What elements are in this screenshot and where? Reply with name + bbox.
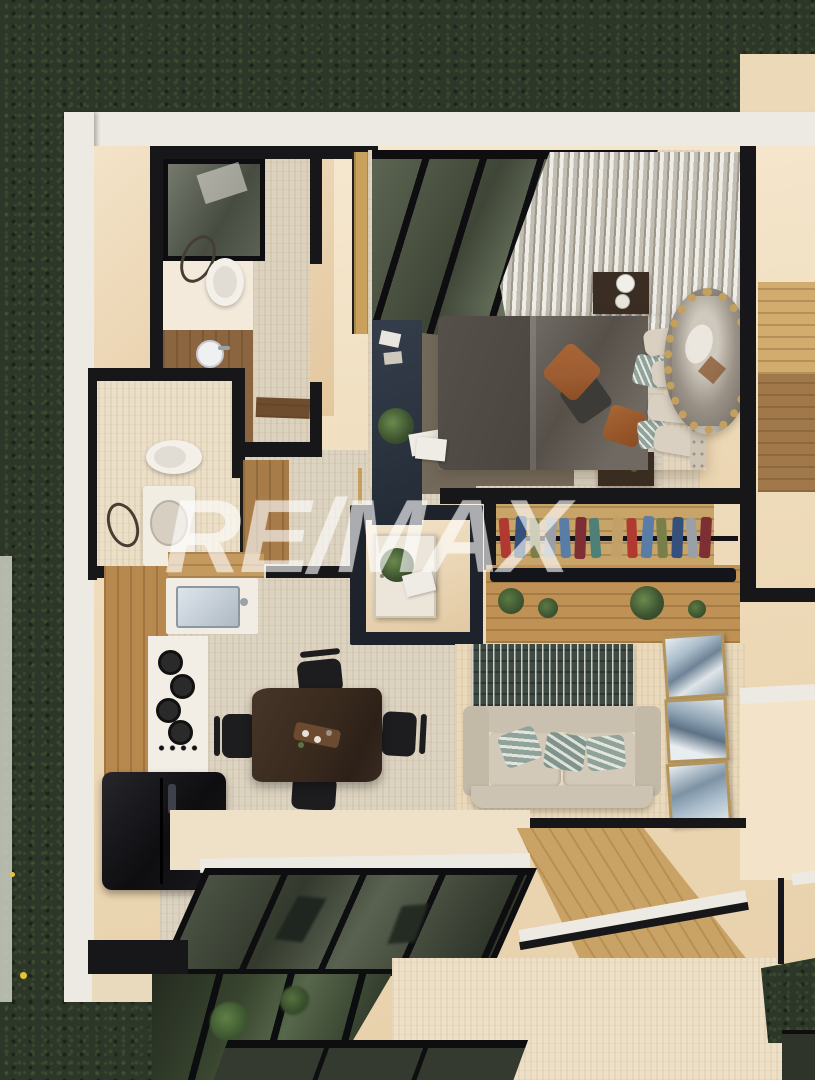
sofa (463, 706, 661, 808)
adjacent-cabinet-upper (758, 282, 815, 374)
floor-plan-render: RE/MAX (0, 0, 815, 1080)
plant-pot (538, 598, 558, 618)
sofa-pillow (543, 731, 588, 772)
artwork-frame (662, 632, 728, 700)
sofa-arm-left (463, 706, 489, 796)
duvet-seam (530, 316, 536, 470)
wall-bathroom-1-top (150, 146, 378, 159)
clothes-item (656, 518, 668, 558)
toilet-1 (206, 258, 244, 306)
duvet-fold (438, 316, 530, 470)
sliding-door-mullions (167, 875, 527, 969)
burner (170, 674, 195, 699)
cup (302, 730, 309, 737)
cooktop-knobs (156, 744, 200, 752)
lower-glass-mullion (310, 1048, 330, 1080)
vanity-sink-1 (196, 340, 224, 368)
wall-bottom-left-pier (88, 940, 188, 974)
table-lamp (616, 274, 635, 293)
sofa-pillow (586, 734, 627, 771)
plant-pot (630, 586, 664, 620)
remax-watermark: RE/MAX (164, 478, 568, 597)
dining-chair (381, 711, 417, 757)
burner (158, 650, 183, 675)
dining-table (252, 688, 382, 782)
wall-bathroom-2-top (88, 368, 245, 381)
plant-pot (688, 600, 706, 618)
toilet-1-seat (213, 266, 237, 298)
table-lamp-small (615, 294, 630, 309)
burner (168, 720, 193, 745)
adjacent-glass-corner (782, 1030, 815, 1080)
lawn-path-strip (0, 556, 12, 1008)
dining-chair-back (214, 716, 220, 756)
toilet-2-seat (154, 446, 186, 468)
living-rug (472, 644, 634, 706)
round-mirror (664, 288, 752, 434)
refrigerator-door-line (160, 778, 163, 884)
lower-plant (210, 1002, 250, 1042)
adjacent-floor-bright (740, 700, 815, 880)
bathroom-1-shelf (256, 397, 311, 419)
kitchen-faucet (240, 598, 248, 606)
sofa-arm-right (635, 706, 661, 796)
cup (298, 742, 304, 748)
flower (20, 972, 27, 979)
sofa-seat-front (471, 786, 653, 808)
adjacent-unit-wall-top (740, 54, 815, 116)
wall-living-bottom (528, 818, 746, 828)
clothes-item (574, 517, 586, 559)
clothes-item (699, 517, 712, 559)
dresser-book (383, 351, 402, 365)
wall-right-main (740, 146, 756, 590)
lower-glass-mullion (409, 1048, 429, 1080)
adjacent-cabinet-lower (758, 374, 815, 492)
faucet-1 (218, 346, 230, 350)
clothes-item (611, 517, 624, 559)
artwork-frame (664, 696, 729, 763)
lower-plant (280, 986, 310, 1016)
dining-chair (222, 714, 256, 758)
lower-glass-strip (211, 1040, 528, 1080)
adjacent-frame-line (778, 878, 784, 964)
sofa-backrest (463, 706, 661, 732)
clothes-item (626, 518, 637, 558)
clothes-item (671, 517, 683, 558)
wall-right-mid (740, 588, 815, 602)
outer-wall-top (82, 112, 815, 146)
dresser-book (379, 330, 401, 348)
wall-bathroom-1-right-upper (310, 146, 322, 264)
magazine (415, 436, 447, 461)
cup (314, 736, 321, 743)
wall-bathroom-2-left (88, 368, 97, 580)
toilet-2 (146, 440, 202, 474)
wall-bathroom-1-right-lower (310, 382, 322, 457)
cup (326, 730, 332, 736)
lawn-bottom-left (0, 1002, 152, 1080)
flower (10, 872, 15, 877)
